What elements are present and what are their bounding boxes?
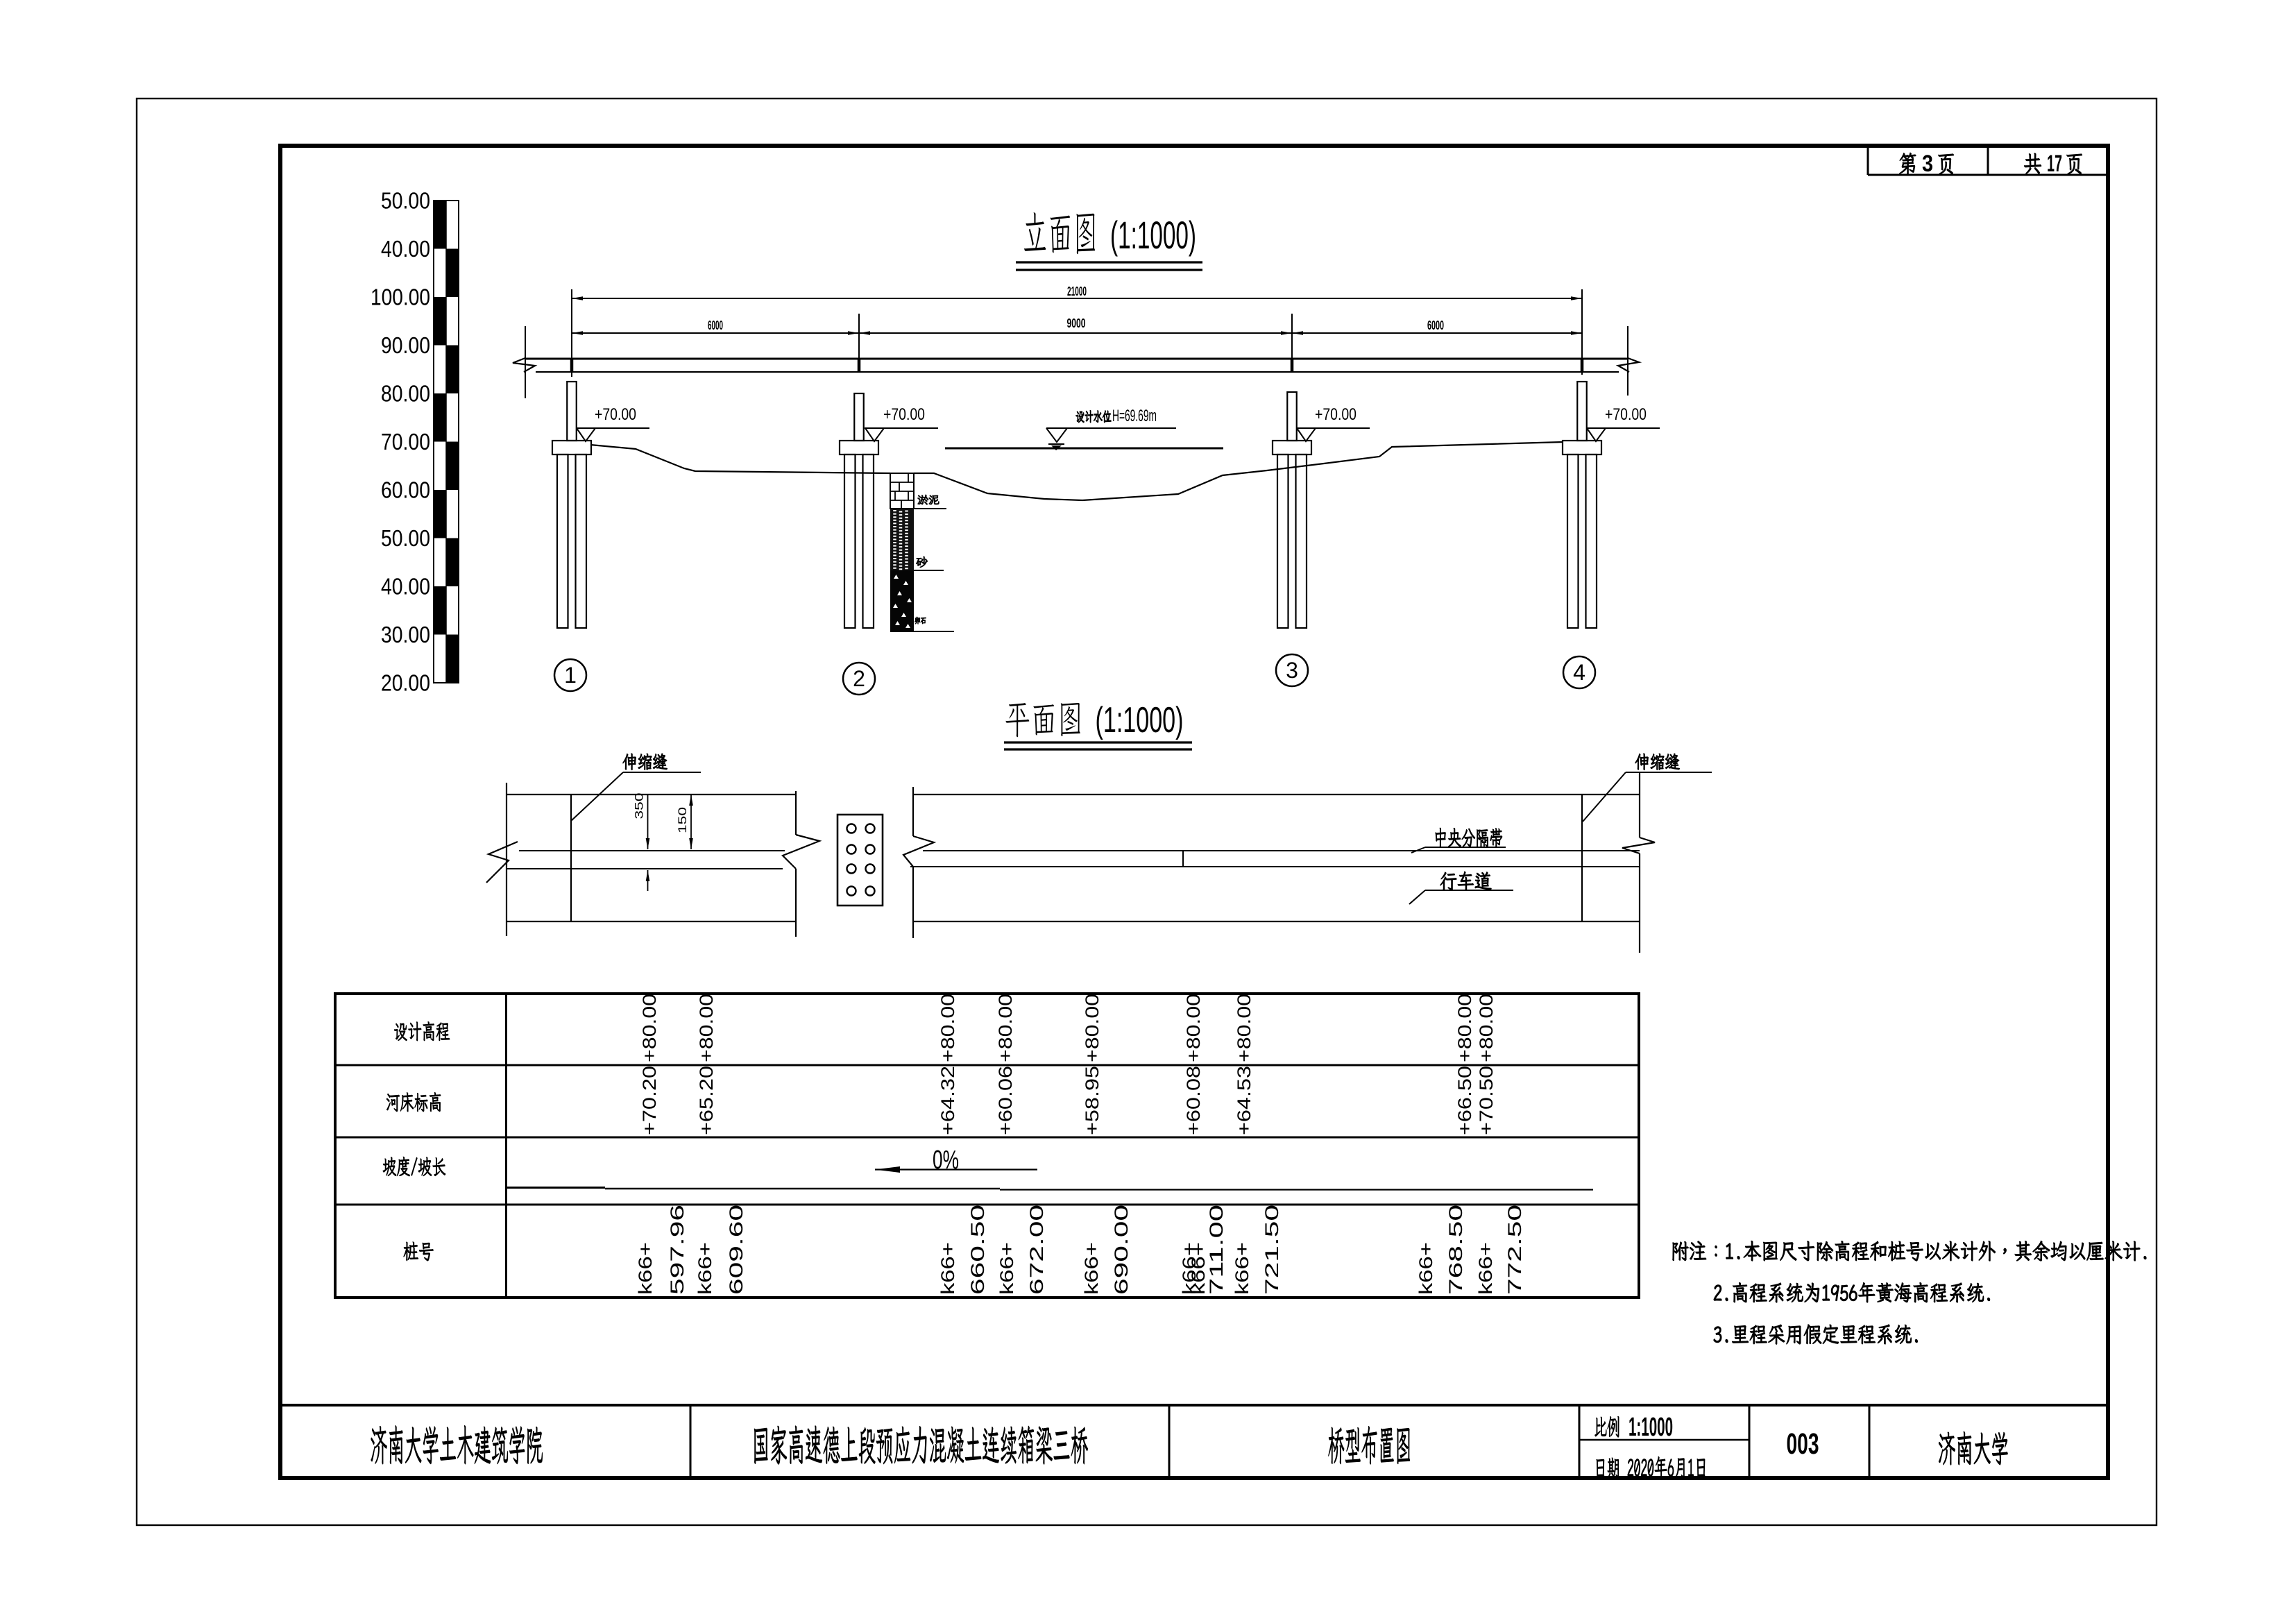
svg-text:+64.53: +64.53 (1234, 1066, 1255, 1135)
svg-text:H=69.69m: H=69.69m (1112, 407, 1157, 425)
svg-text:+58.95: +58.95 (1082, 1066, 1103, 1135)
svg-text:+80.00: +80.00 (696, 994, 717, 1062)
svg-text:k66+: k66+ (1188, 1242, 1209, 1295)
svg-text:350: 350 (633, 793, 646, 819)
svg-text:+70.20: +70.20 (639, 1066, 660, 1135)
svg-text:4: 4 (1573, 660, 1585, 685)
svg-text:597.96: 597.96 (667, 1205, 688, 1295)
svg-text:40.00: 40.00 (381, 574, 430, 600)
svg-text:2: 2 (853, 666, 865, 691)
svg-text:+60.08: +60.08 (1183, 1066, 1204, 1135)
svg-text:30.00: 30.00 (381, 622, 430, 647)
svg-text:672.00: 672.00 (1026, 1205, 1047, 1295)
svg-text:17: 17 (2047, 151, 2062, 177)
svg-text:k66+: k66+ (695, 1242, 715, 1295)
svg-text:+80.00: +80.00 (1234, 994, 1255, 1062)
svg-text:k66+: k66+ (1081, 1242, 1102, 1295)
svg-text:6000: 6000 (708, 318, 723, 332)
svg-text:+64.32: +64.32 (937, 1066, 958, 1135)
svg-text:660.50: 660.50 (967, 1205, 988, 1295)
svg-text:+60.06: +60.06 (995, 1066, 1016, 1135)
svg-text:80.00: 80.00 (381, 381, 430, 407)
svg-text:k66+: k66+ (635, 1242, 656, 1295)
svg-text:90.00: 90.00 (381, 332, 430, 358)
svg-text:+70.00: +70.00 (1315, 405, 1357, 424)
svg-text:768.50: 768.50 (1445, 1205, 1466, 1295)
svg-text:+70.00: +70.00 (883, 405, 925, 424)
svg-text:+65.20: +65.20 (696, 1066, 717, 1135)
svg-text:003: 003 (1787, 1427, 1819, 1461)
svg-text:+70.50: +70.50 (1476, 1066, 1497, 1135)
svg-text:721.50: 721.50 (1261, 1205, 1282, 1295)
svg-text:+70.00: +70.00 (1605, 405, 1647, 424)
svg-text:k66+: k66+ (1415, 1242, 1436, 1295)
svg-text:1: 1 (564, 663, 577, 688)
svg-text:(1:1000): (1:1000) (1110, 213, 1196, 257)
svg-text:6000: 6000 (1427, 318, 1444, 332)
svg-text:+80.00: +80.00 (1082, 994, 1103, 1062)
svg-text:3: 3 (1922, 151, 1933, 177)
svg-text:3: 3 (1286, 658, 1298, 683)
svg-text:50.00: 50.00 (381, 525, 430, 551)
svg-text:690.00: 690.00 (1111, 1205, 1132, 1295)
svg-text:772.50: 772.50 (1504, 1205, 1525, 1295)
svg-text:20.00: 20.00 (381, 670, 430, 696)
svg-text:609.60: 609.60 (726, 1205, 747, 1295)
svg-text:+66.50: +66.50 (1454, 1066, 1475, 1135)
svg-text:+80.00: +80.00 (639, 994, 660, 1062)
svg-text:70.00: 70.00 (381, 429, 430, 454)
svg-text:+80.00: +80.00 (1183, 994, 1204, 1062)
svg-text:+80.00: +80.00 (1476, 994, 1497, 1062)
svg-text:150: 150 (676, 807, 689, 833)
svg-text:+80.00: +80.00 (995, 994, 1016, 1062)
svg-text:k66+: k66+ (1232, 1242, 1252, 1295)
svg-text:0%: 0% (933, 1146, 959, 1175)
svg-text:+70.00: +70.00 (595, 405, 636, 424)
svg-text:9000: 9000 (1067, 316, 1086, 330)
svg-text:711.00: 711.00 (1206, 1205, 1227, 1295)
svg-text:+80.00: +80.00 (937, 994, 958, 1062)
svg-text:60.00: 60.00 (381, 477, 430, 503)
svg-text:k66+: k66+ (996, 1242, 1017, 1295)
svg-text:21000: 21000 (1067, 284, 1087, 298)
svg-text:+80.00: +80.00 (1454, 994, 1475, 1062)
svg-text:1:1000: 1:1000 (1629, 1413, 1673, 1442)
svg-text:(1:1000): (1:1000) (1096, 700, 1184, 740)
svg-text:40.00: 40.00 (381, 236, 430, 262)
svg-text:100.00: 100.00 (371, 284, 430, 310)
svg-text:50.00: 50.00 (381, 188, 430, 214)
svg-text:k66+: k66+ (1475, 1242, 1496, 1295)
svg-text:k66+: k66+ (937, 1242, 958, 1295)
